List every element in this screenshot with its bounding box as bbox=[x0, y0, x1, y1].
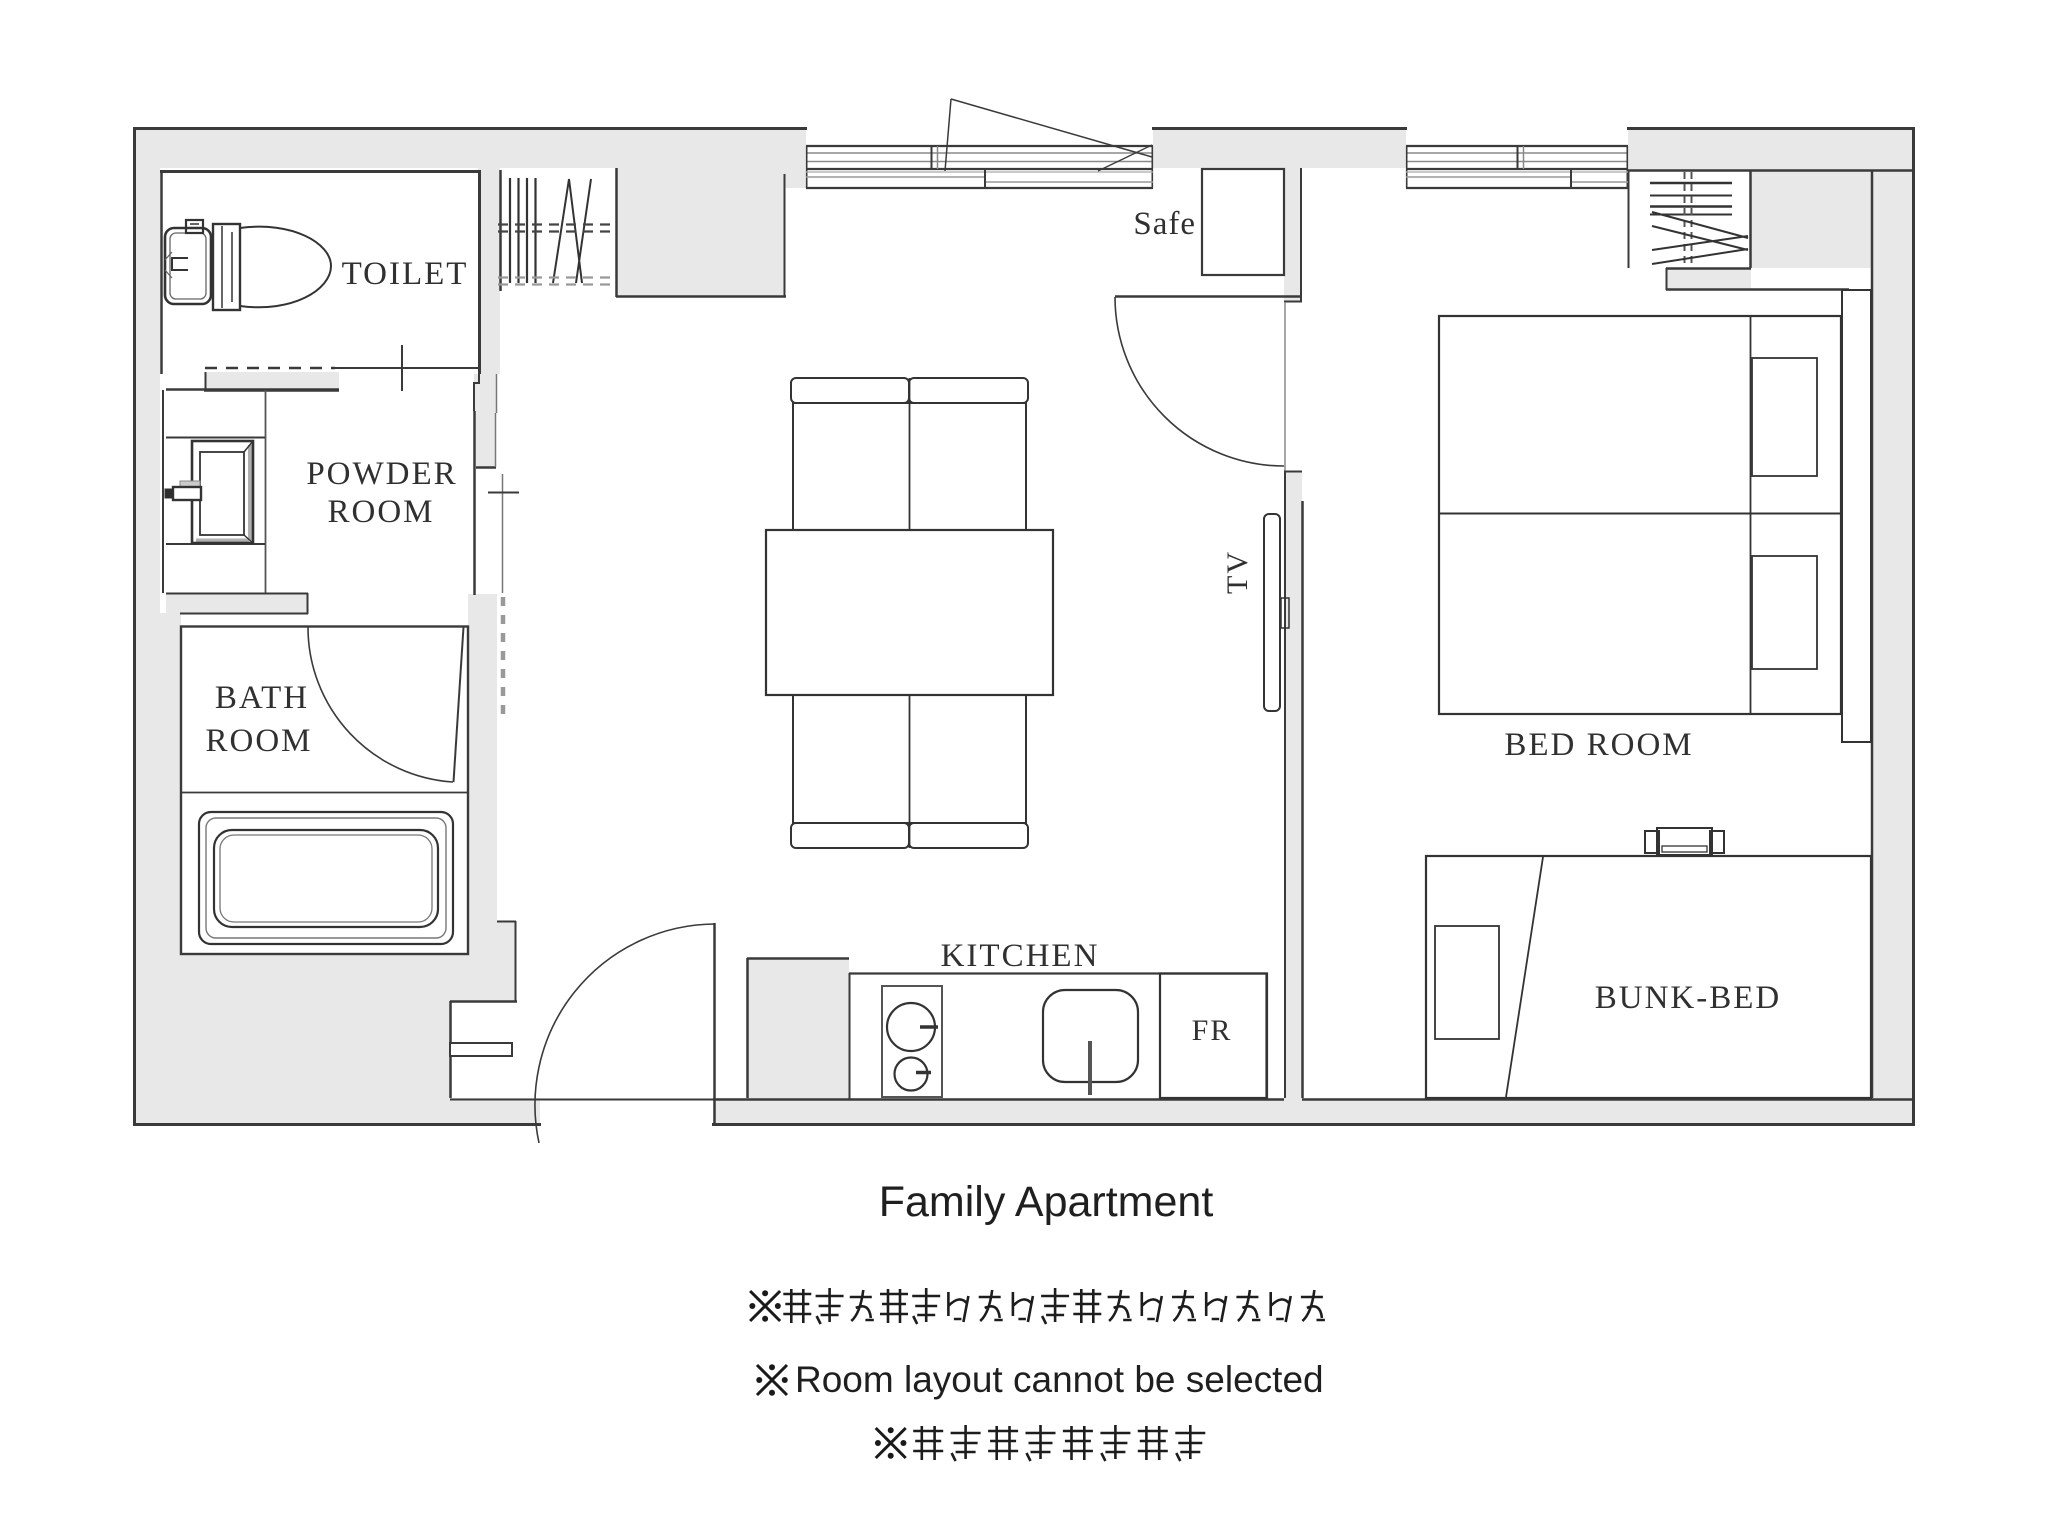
svg-text:ROOM: ROOM bbox=[205, 723, 312, 759]
svg-text:BATH: BATH bbox=[215, 680, 309, 716]
svg-text:Family Apartment: Family Apartment bbox=[879, 1178, 1214, 1226]
svg-text:Room layout cannot be selected: Room layout cannot be selected bbox=[795, 1359, 1324, 1400]
svg-text:POWDER: POWDER bbox=[306, 456, 457, 492]
svg-text:KITCHEN: KITCHEN bbox=[941, 938, 1100, 974]
svg-text:FR: FR bbox=[1192, 1014, 1233, 1047]
svg-text:TOILET: TOILET bbox=[342, 256, 469, 292]
svg-text:BED ROOM: BED ROOM bbox=[1504, 727, 1693, 763]
svg-text:Safe: Safe bbox=[1133, 206, 1196, 242]
svg-text:TV: TV bbox=[1221, 550, 1254, 594]
svg-text:ROOM: ROOM bbox=[327, 494, 434, 530]
svg-text:BUNK-BED: BUNK-BED bbox=[1595, 980, 1782, 1016]
